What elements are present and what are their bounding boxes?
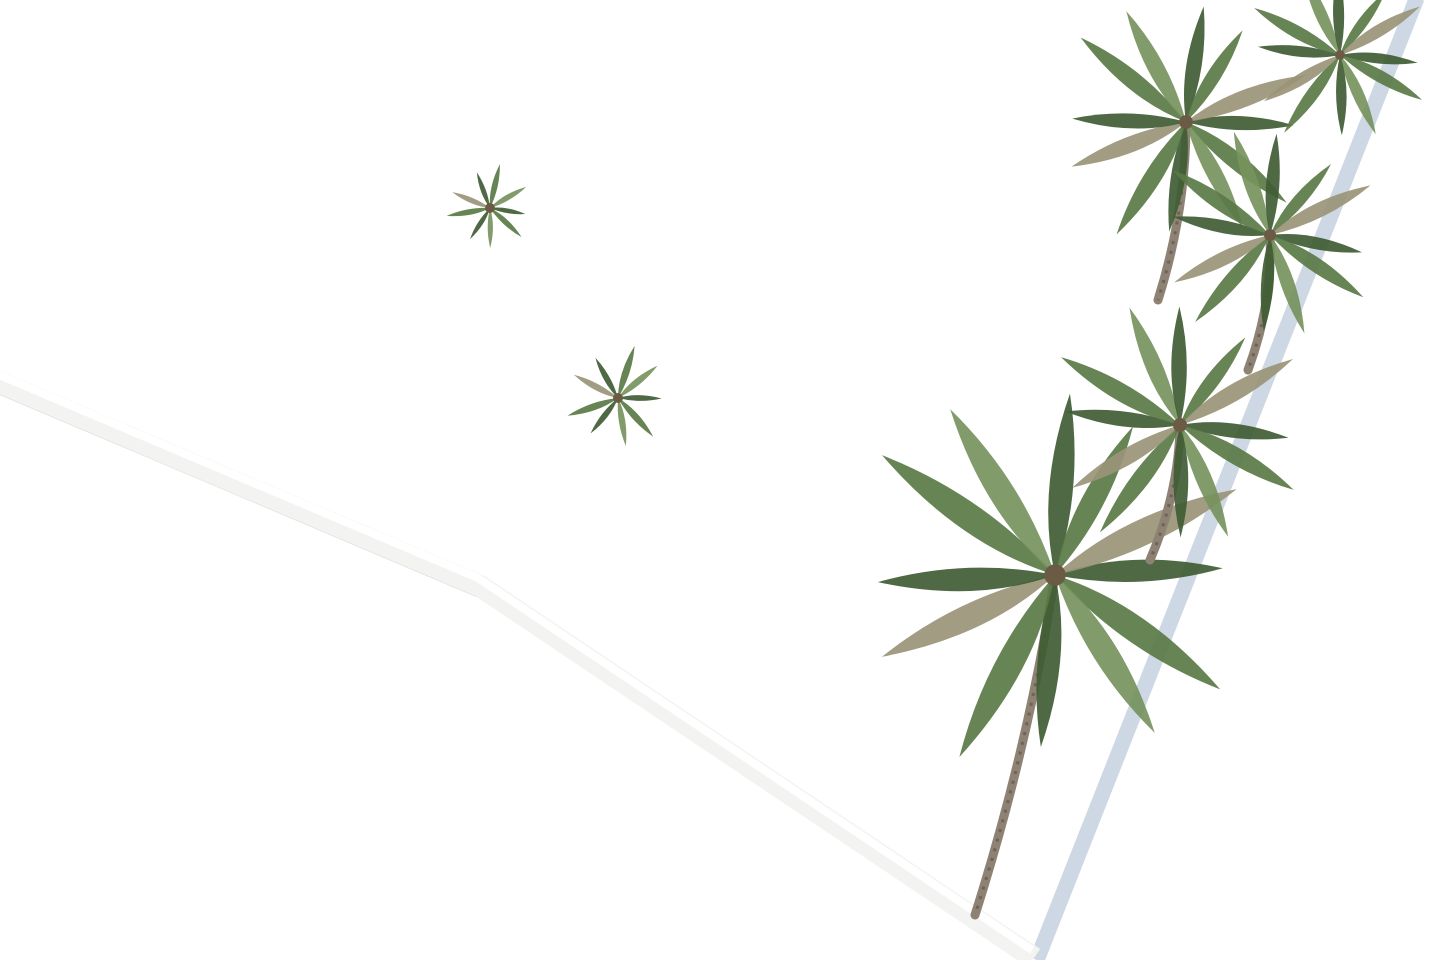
palm-crown — [1044, 564, 1066, 586]
palm-crown — [613, 393, 623, 403]
palm-frond — [1068, 420, 1186, 493]
palm-crown — [1264, 229, 1276, 241]
boundary-wall-bottom — [0, 380, 1034, 958]
architectural-render-image — [0, 0, 1440, 960]
palm-frond — [1120, 7, 1190, 127]
palm-frond — [1260, 52, 1344, 106]
render-canvas — [0, 0, 1440, 960]
palm-frond — [1171, 231, 1274, 287]
palm-frond — [618, 394, 662, 402]
palm-crown — [1173, 418, 1187, 432]
palm-crown — [485, 203, 495, 213]
palm-tree — [446, 163, 528, 248]
palm-crown — [1335, 50, 1345, 60]
palm-crown — [1179, 115, 1193, 129]
palm-tree — [566, 345, 662, 447]
palm-frond — [941, 401, 1062, 584]
bottom-wall-shadow — [0, 390, 1037, 960]
palm-tree — [1252, 0, 1425, 137]
